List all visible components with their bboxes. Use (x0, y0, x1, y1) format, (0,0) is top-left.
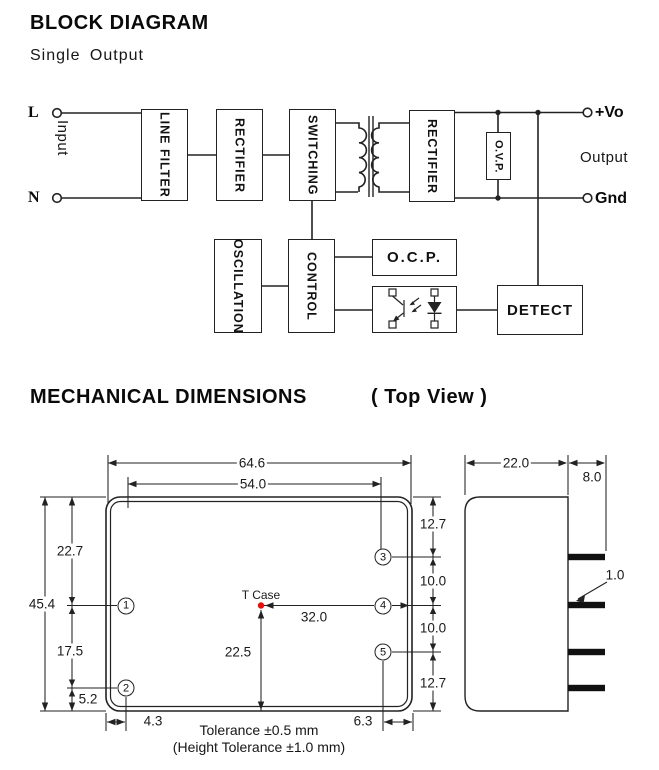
block-ovp: O.V.P. (486, 132, 511, 180)
dim-case-height: 45.4 (27, 597, 57, 612)
t-case-dot (258, 602, 264, 608)
dim-pin2-to-bottom: 5.2 (79, 692, 98, 707)
t-case-label: T Case (242, 588, 280, 602)
side-view-pins (568, 554, 605, 691)
page: BLOCK DIAGRAM Single Output MECHANICAL D… (0, 0, 659, 770)
terminal-n-label: N (28, 189, 40, 207)
dim-case-width: 64.6 (237, 456, 267, 471)
dim-pin-thickness: 1.0 (606, 568, 625, 583)
block-diagram-subtitle: Single Output (30, 47, 144, 65)
input-label: Input (54, 120, 71, 192)
block-optocoupler (372, 286, 457, 333)
dim-top-to-pin1: 22.7 (55, 544, 85, 559)
block-oscillation: OSCILLATION (214, 239, 262, 333)
case-side-view (465, 497, 605, 711)
block-rectifier-input: RECTIFIER (216, 109, 263, 201)
pin-marker-1: 1 (118, 597, 135, 614)
transformer-icon (336, 116, 409, 197)
height-tolerance-note: (Height Tolerance ±1.0 mm) (109, 739, 409, 755)
dim-pin3-to-pin4: 10.0 (418, 574, 448, 589)
output-label: Output (580, 149, 628, 166)
block-switching: SWITCHING (289, 109, 336, 201)
dim-pin-length: 8.0 (583, 470, 602, 485)
block-detect: DETECT (497, 285, 583, 335)
pin-marker-4: 4 (375, 597, 392, 614)
dim-pin5-to-bottom: 12.7 (418, 676, 448, 691)
mechanical-view-label: ( Top View ) (371, 386, 487, 409)
dim-top-to-pin3: 12.7 (418, 517, 448, 532)
dim-pin1-to-pin2: 17.5 (55, 644, 85, 659)
optocoupler-icon (374, 288, 455, 331)
terminal-gnd-label: Gnd (595, 190, 627, 208)
block-line-filter: LINE FILTER (141, 109, 188, 201)
mechanical-title: MECHANICAL DIMENSIONS (30, 386, 307, 409)
terminal-vo-label: +Vo (595, 104, 624, 122)
dim-tcase-to-bottom: 22.5 (225, 645, 251, 660)
tolerance-note: Tolerance ±0.5 mm (109, 722, 409, 738)
block-control: CONTROL (288, 239, 335, 333)
pin-marker-2: 2 (118, 680, 135, 697)
block-rectifier-output: RECTIFIER (409, 110, 455, 202)
terminal-l-label: L (28, 104, 39, 122)
dim-pin4-to-pin5: 10.0 (418, 621, 448, 636)
dim-case-depth: 22.0 (501, 456, 531, 471)
dim-tcase-to-right-edge: 32.0 (301, 610, 327, 625)
pin-marker-5: 5 (375, 644, 392, 661)
block-diagram-title: BLOCK DIAGRAM (30, 12, 209, 35)
dim-pin-span: 54.0 (238, 477, 268, 492)
pin-marker-3: 3 (375, 549, 392, 566)
block-ocp: O.C.P. (372, 239, 457, 276)
